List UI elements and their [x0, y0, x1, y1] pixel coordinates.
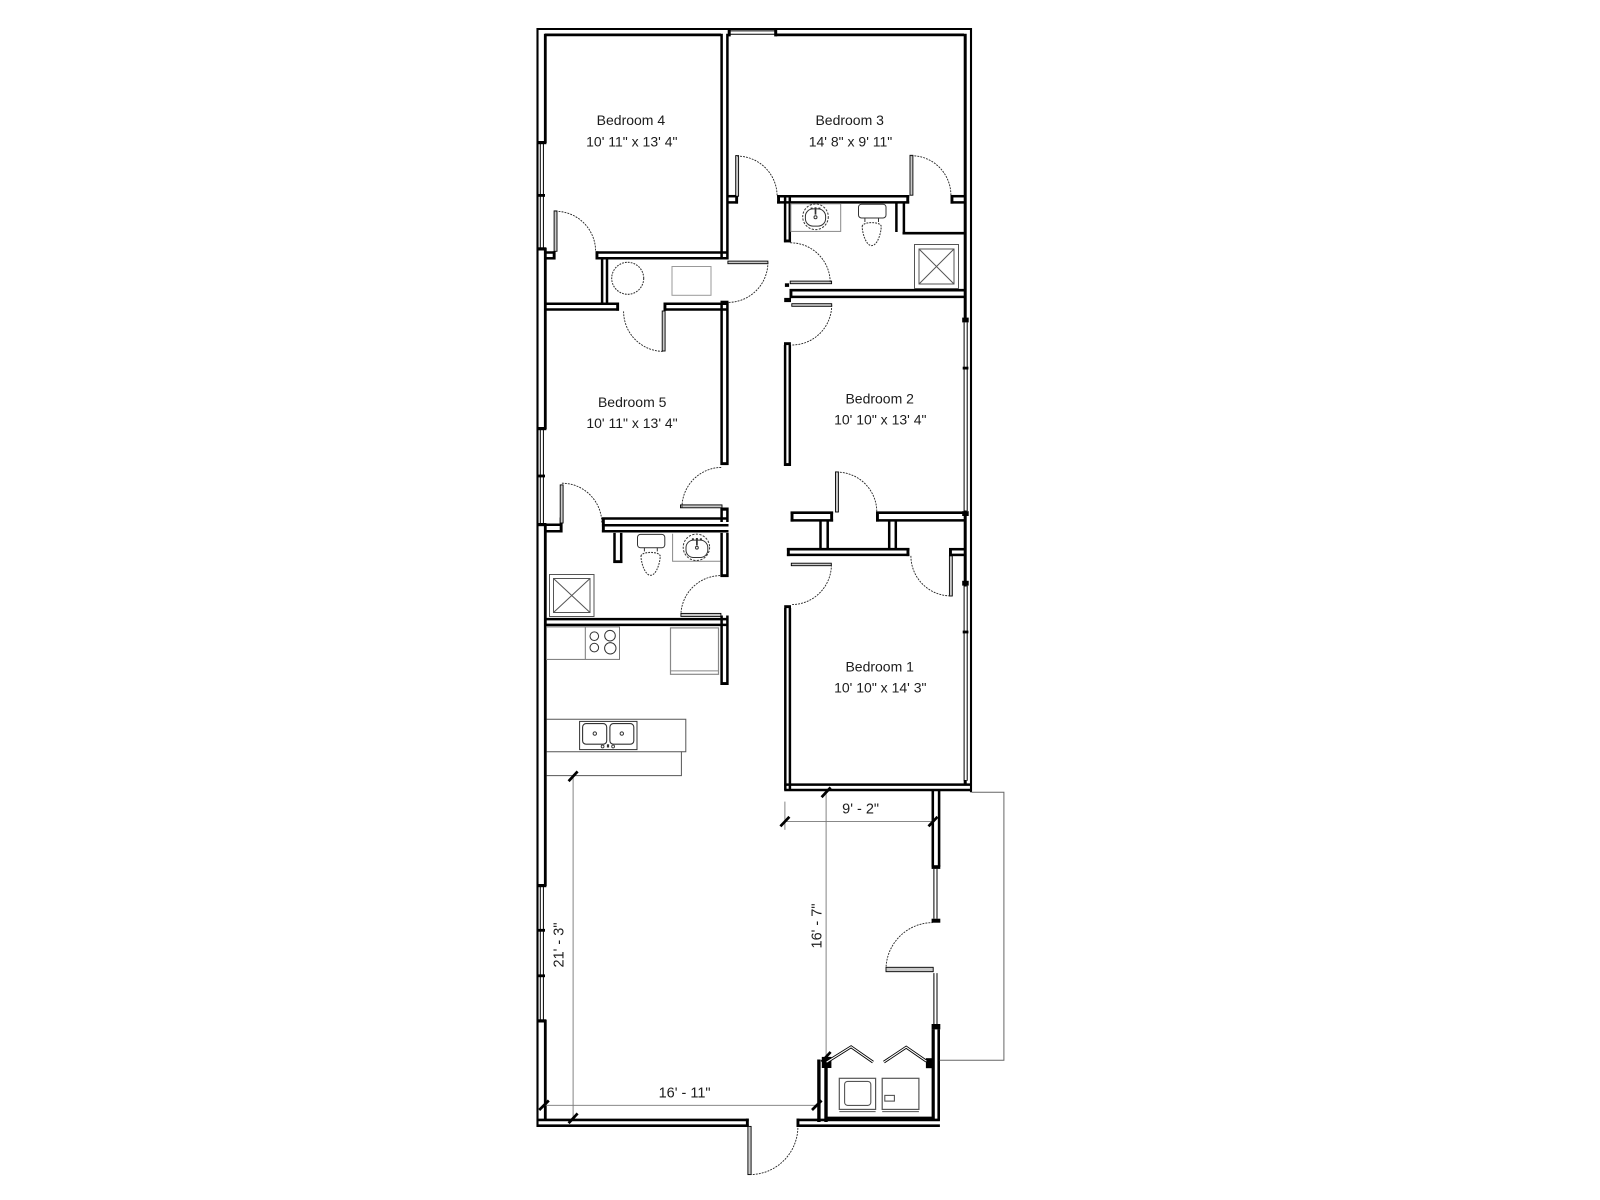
svg-text:Bedroom 1: Bedroom 1 — [845, 658, 914, 674]
svg-text:Bedroom 3: Bedroom 3 — [815, 112, 884, 128]
svg-text:16' - 7": 16' - 7" — [810, 904, 826, 949]
svg-text:Bedroom 4: Bedroom 4 — [597, 112, 666, 128]
svg-text:21' - 3": 21' - 3" — [552, 923, 568, 968]
svg-text:Bedroom 2: Bedroom 2 — [845, 390, 914, 406]
svg-text:10' 11" x 13' 4": 10' 11" x 13' 4" — [586, 415, 677, 431]
svg-text:10' 10" x 14' 3": 10' 10" x 14' 3" — [834, 679, 926, 695]
svg-text:9' - 2": 9' - 2" — [842, 802, 879, 818]
svg-text:16' - 11": 16' - 11" — [659, 1085, 711, 1101]
svg-text:10' 10" x 13' 4": 10' 10" x 13' 4" — [834, 411, 926, 427]
svg-text:14' 8" x 9' 11": 14' 8" x 9' 11" — [809, 133, 893, 149]
svg-text:10' 11" x 13' 4": 10' 11" x 13' 4" — [586, 133, 677, 149]
svg-text:Bedroom 5: Bedroom 5 — [598, 394, 667, 410]
